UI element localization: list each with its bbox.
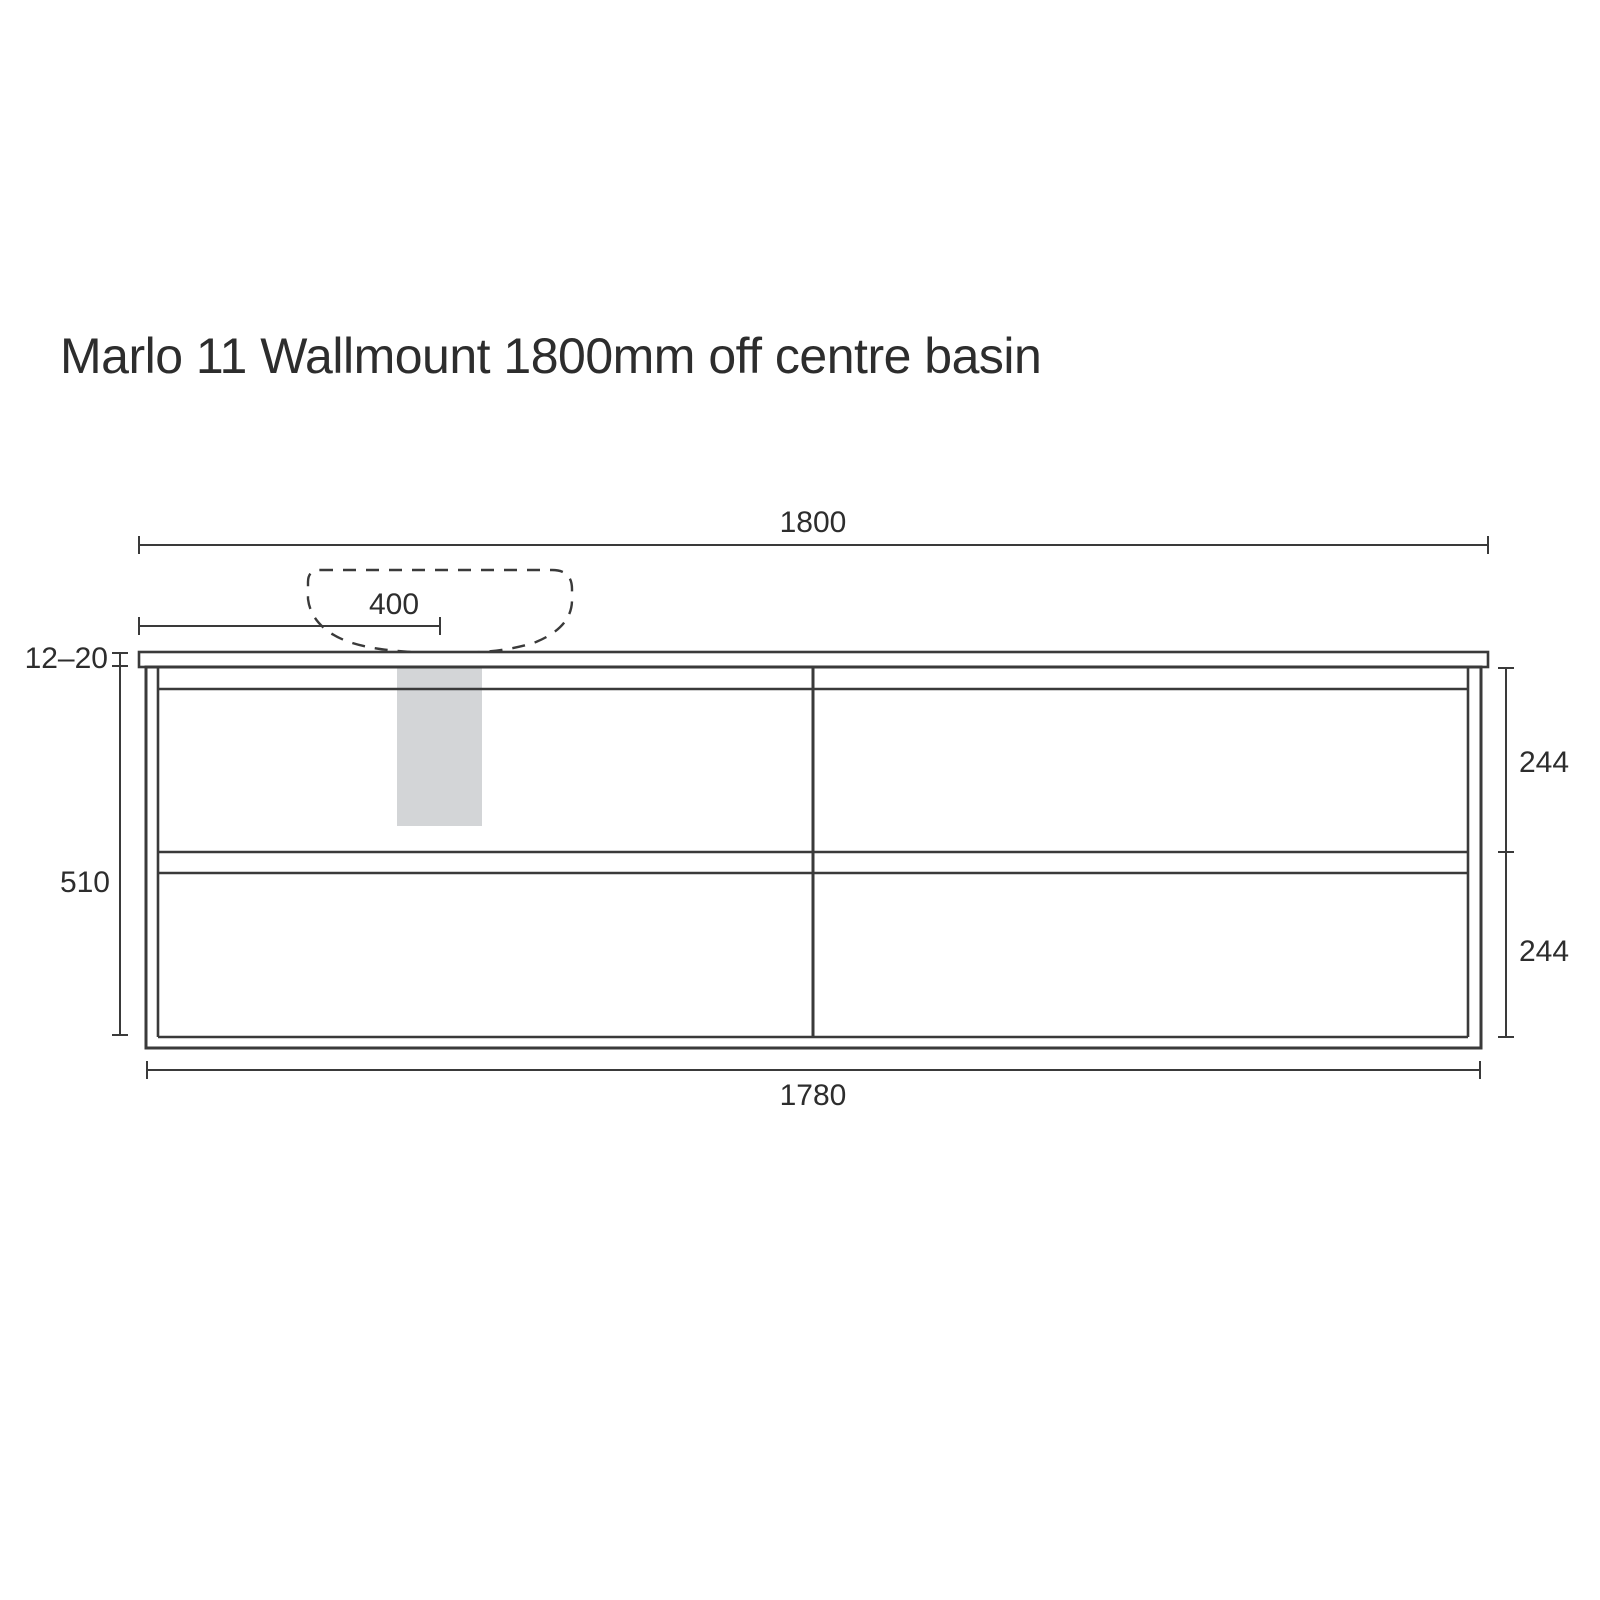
- dim-label-bottom-drawer: 244: [1519, 935, 1569, 968]
- dim-label-overall-width: 1800: [780, 506, 847, 539]
- dim-label-cabinet-height: 510: [60, 866, 110, 899]
- page: Marlo 11 Wallmount 1800mm off centre bas…: [0, 0, 1600, 1600]
- dim-label-cabinet-width: 1780: [780, 1079, 847, 1112]
- basin-dashed-outline: [308, 570, 572, 653]
- dim-benchtop-thickness: 12–20: [25, 642, 128, 675]
- dim-label-basin-offset: 400: [369, 588, 419, 621]
- dim-cabinet-width: 1780: [147, 1061, 1480, 1112]
- dim-basin-offset: 400: [139, 588, 440, 635]
- waste-clearance-highlight: [397, 668, 482, 826]
- dim-drawer-fronts: 244 244: [1498, 668, 1569, 1037]
- dim-label-top-drawer: 244: [1519, 746, 1569, 779]
- dim-overall-width: 1800: [139, 506, 1488, 554]
- dim-label-benchtop-thickness: 12–20: [25, 642, 108, 675]
- benchtop-outline: [139, 652, 1488, 667]
- dim-cabinet-height: 510: [60, 666, 128, 1035]
- vanity-technical-drawing: 1800 400 12–20 510: [0, 0, 1600, 1600]
